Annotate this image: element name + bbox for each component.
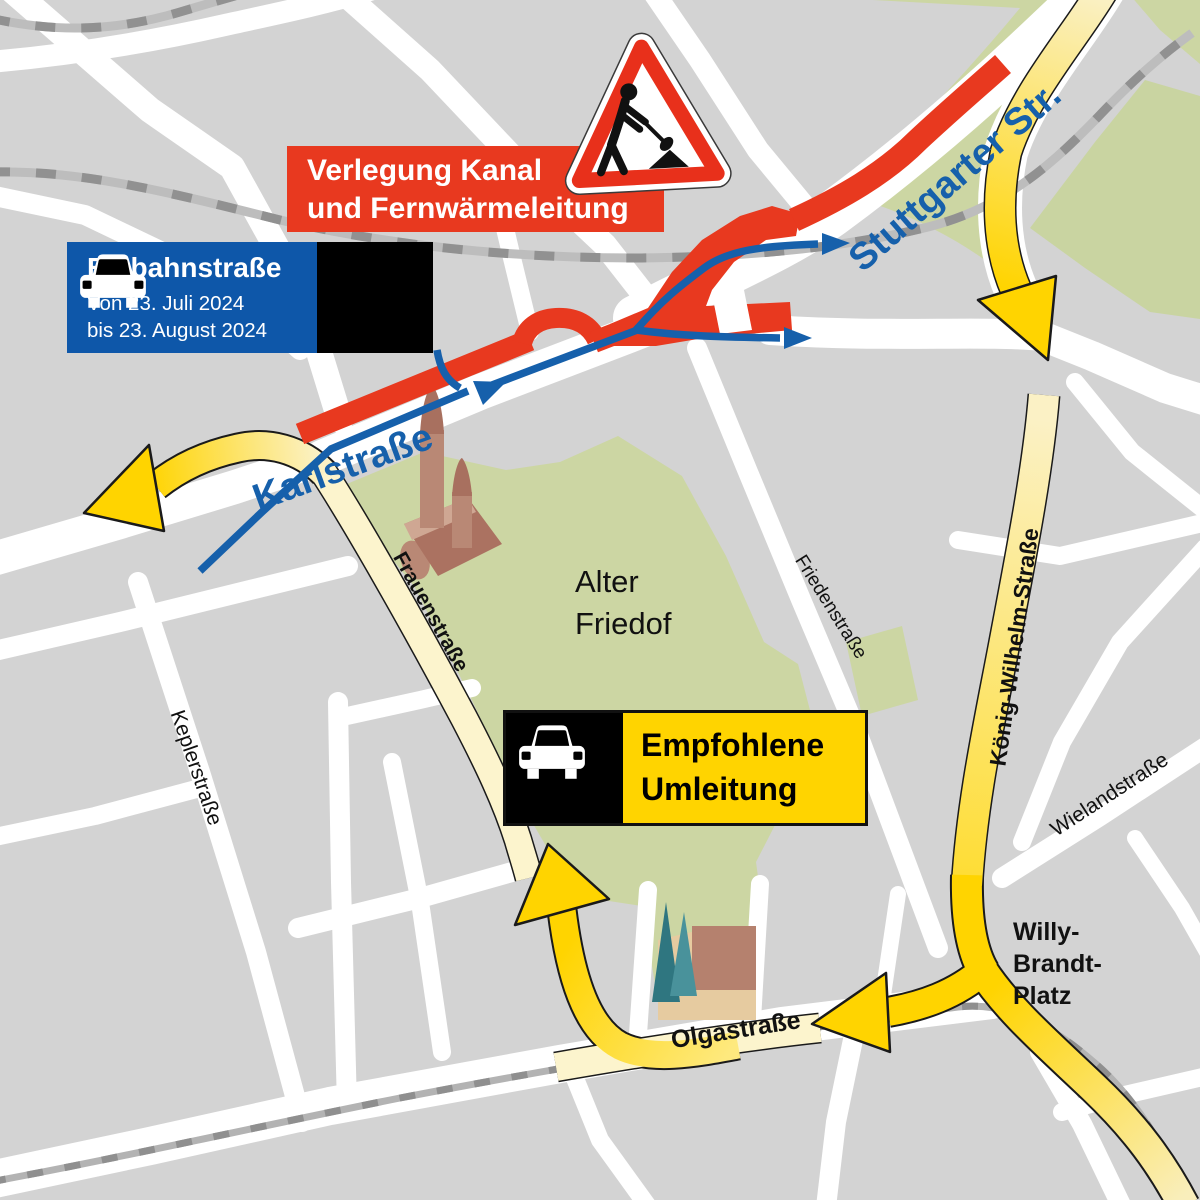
oneway-banner: Einbahnstraße Von 23. Juli 2024 bis 23. … <box>67 242 433 353</box>
car-icon <box>67 242 159 316</box>
roadworks-triangle-icon <box>555 25 735 195</box>
detour-willy-brandt-junction <box>967 875 984 972</box>
place-label-willy-brandt-2: Brandt- <box>1013 950 1102 978</box>
place-label-willy-brandt-1: Willy- <box>1013 918 1079 946</box>
area-label-cemetery-2: Friedof <box>575 606 672 641</box>
oneway-banner-date2: bis 23. August 2024 <box>87 317 317 344</box>
detour-map: Stuttgarter Str. Karlstraße Frauenstraße… <box>0 0 1200 1200</box>
roadworks-sign <box>555 25 735 195</box>
detour-banner-text: Empfohlene Umleitung <box>623 713 865 823</box>
oneway-banner-car-box <box>317 242 433 353</box>
place-label-willy-brandt-3: Platz <box>1013 982 1071 1010</box>
area-label-cemetery-1: Alter <box>575 564 639 599</box>
detour-banner: Empfohlene Umleitung <box>503 710 868 826</box>
detour-banner-line1: Empfohlene <box>641 723 865 767</box>
roadworks-banner-line2: und Fernwärmeleitung <box>307 190 664 228</box>
detour-banner-line2: Umleitung <box>641 767 865 811</box>
car-icon <box>506 713 598 787</box>
detour-banner-car-box <box>506 713 623 823</box>
